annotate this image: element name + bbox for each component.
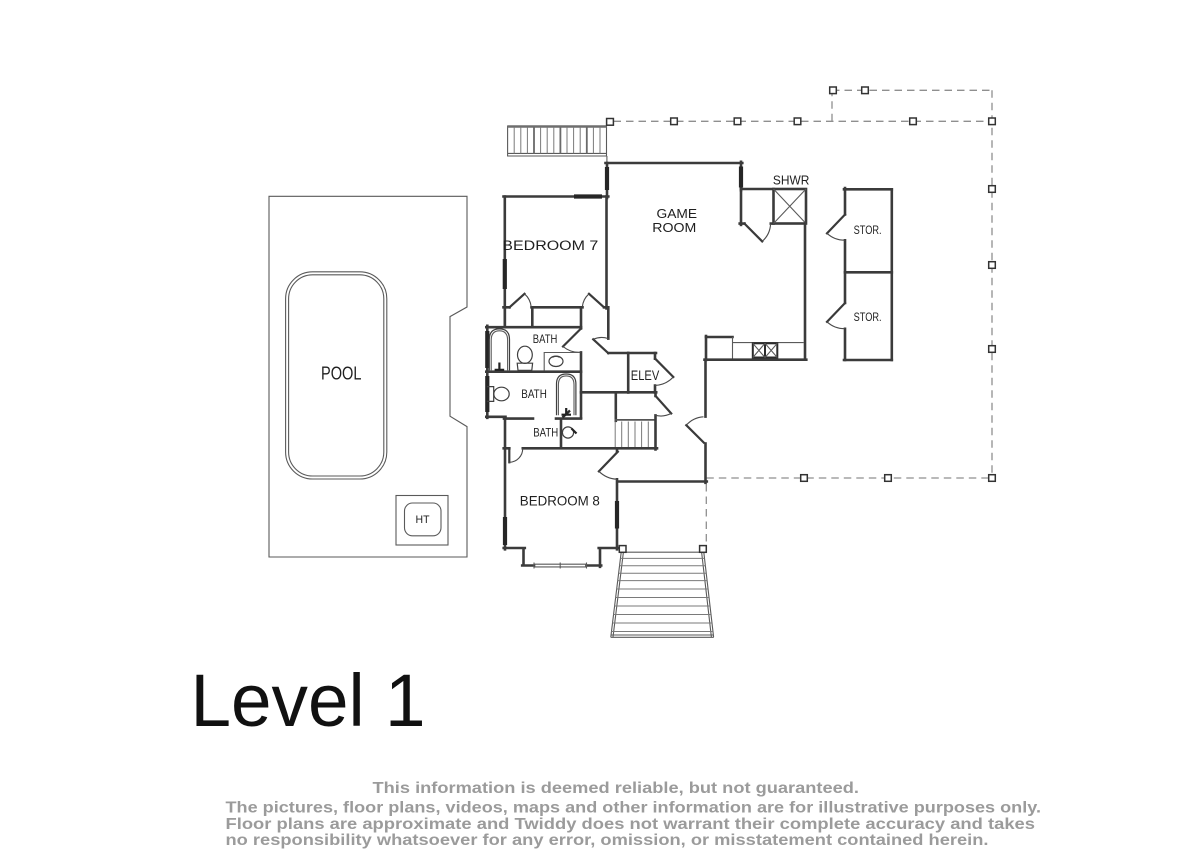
svg-text:BATH: BATH: [533, 426, 558, 440]
svg-text:BEDROOM 7: BEDROOM 7: [502, 238, 598, 254]
svg-text:BEDROOM 8: BEDROOM 8: [520, 492, 600, 508]
svg-text:This information is deemed rel: This information is deemed reliable, but…: [373, 780, 860, 797]
svg-text:The pictures, floor plans, vid: The pictures, floor plans, videos, maps …: [226, 800, 1042, 817]
svg-text:STOR.: STOR.: [854, 223, 882, 237]
svg-text:BATH: BATH: [521, 387, 547, 401]
svg-text:Level 1: Level 1: [191, 659, 426, 742]
svg-text:HT: HT: [416, 514, 430, 526]
svg-text:ELEV: ELEV: [631, 368, 660, 383]
svg-text:GAME: GAME: [657, 206, 698, 221]
svg-text:SHWR: SHWR: [773, 173, 810, 188]
svg-text:STOR.: STOR.: [854, 310, 882, 324]
svg-text:ROOM: ROOM: [652, 220, 696, 235]
svg-text:BATH: BATH: [533, 332, 558, 346]
svg-text:POOL: POOL: [321, 363, 362, 384]
svg-text:Floor plans are approximate an: Floor plans are approximate and Twiddy d…: [226, 816, 1036, 833]
svg-text:no responsibility whatsoever f: no responsibility whatsoever for any err…: [226, 832, 989, 849]
